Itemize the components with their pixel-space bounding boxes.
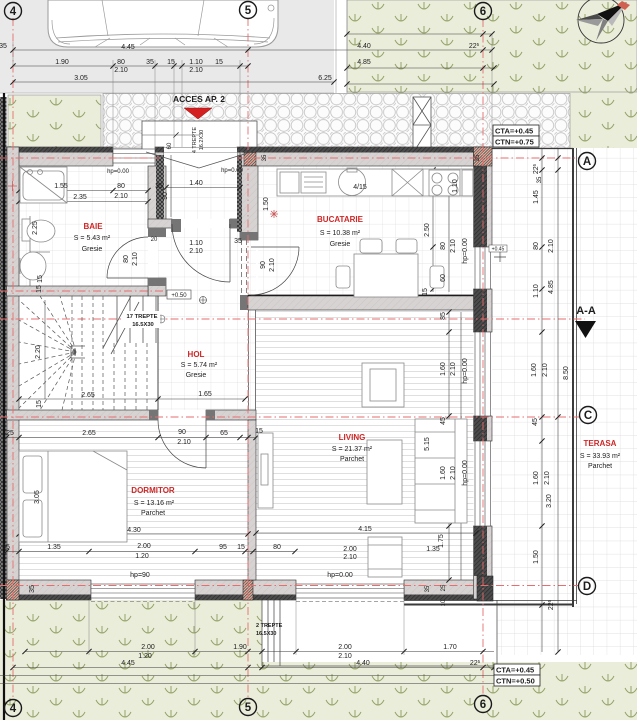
svg-text:2.10: 2.10: [269, 258, 276, 272]
svg-text:15: 15: [422, 288, 429, 296]
svg-text:80: 80: [533, 242, 540, 250]
svg-text:4.85: 4.85: [548, 280, 555, 294]
svg-text:10: 10: [441, 599, 447, 606]
svg-text:4.40: 4.40: [357, 43, 371, 50]
svg-text:S = 33.93 m²: S = 33.93 m²: [580, 453, 621, 460]
svg-text:1.20: 1.20: [138, 653, 152, 660]
svg-text:4.15: 4.15: [358, 526, 372, 533]
svg-text:2.10: 2.10: [114, 193, 128, 200]
svg-text:45: 45: [532, 418, 539, 426]
svg-text:3.20: 3.20: [546, 494, 553, 508]
svg-text:4.85: 4.85: [357, 59, 371, 66]
svg-text:2.10: 2.10: [177, 439, 191, 446]
svg-text:35: 35: [425, 585, 431, 592]
svg-text:15: 15: [37, 275, 44, 283]
svg-text:6: 6: [480, 6, 486, 18]
svg-text:4.45: 4.45: [121, 44, 135, 51]
svg-text:15: 15: [255, 428, 263, 435]
svg-text:2.50: 2.50: [424, 223, 431, 237]
svg-text:CTN=+0.50: CTN=+0.50: [496, 677, 535, 686]
svg-text:2.00: 2.00: [137, 543, 151, 550]
svg-text:2.00: 2.00: [141, 644, 155, 651]
svg-text:A-A: A-A: [576, 305, 596, 317]
svg-text:1.50: 1.50: [533, 550, 540, 564]
svg-text:2.10: 2.10: [548, 239, 555, 253]
svg-text:1.65: 1.65: [198, 391, 212, 398]
svg-text:25: 25: [441, 584, 447, 591]
svg-text:4/15: 4/15: [353, 184, 367, 191]
svg-text:16.5X30: 16.5X30: [132, 322, 154, 328]
svg-text:hp=0.00: hp=0.00: [462, 238, 469, 264]
svg-text:ACCES AP. 2: ACCES AP. 2: [173, 94, 225, 104]
svg-text:BUCATARIE: BUCATARIE: [317, 215, 364, 224]
svg-text:1.90: 1.90: [55, 59, 69, 66]
svg-text:1.40: 1.40: [189, 180, 203, 187]
svg-text:95: 95: [219, 544, 227, 551]
svg-text:2.10: 2.10: [343, 554, 357, 561]
svg-text:D: D: [583, 581, 591, 593]
svg-text:80: 80: [117, 59, 125, 66]
svg-text:35: 35: [537, 176, 543, 183]
svg-text:2.10: 2.10: [542, 363, 549, 377]
svg-text:1.10: 1.10: [452, 179, 459, 193]
svg-text:C: C: [584, 410, 592, 422]
svg-text:A: A: [583, 156, 591, 168]
svg-text:90: 90: [178, 429, 186, 436]
svg-text:5: 5: [245, 702, 252, 714]
svg-text:65: 65: [220, 430, 228, 437]
svg-text:LIVING: LIVING: [339, 433, 366, 442]
svg-text:35: 35: [2, 544, 10, 551]
svg-text:2.10: 2.10: [189, 248, 203, 255]
svg-text:15: 15: [215, 59, 223, 66]
svg-text:35: 35: [29, 585, 36, 593]
svg-text:1.50: 1.50: [263, 197, 270, 211]
svg-text:S = 21.37 m²: S = 21.37 m²: [332, 446, 373, 453]
svg-text:5: 5: [245, 5, 252, 17]
svg-text:2.10: 2.10: [189, 67, 203, 74]
svg-text:4: 4: [10, 703, 17, 715]
svg-text:S = 5.74 m²: S = 5.74 m²: [181, 362, 218, 369]
svg-text:hp=0.00: hp=0.00: [107, 169, 130, 175]
svg-text:4: 4: [10, 6, 17, 18]
svg-text:2.00: 2.00: [343, 546, 357, 553]
svg-text:5.15: 5.15: [424, 437, 431, 451]
svg-text:Gresie: Gresie: [82, 246, 103, 253]
svg-text:3.05: 3.05: [74, 75, 88, 82]
svg-text:2.25: 2.25: [32, 221, 39, 235]
svg-text:1.60: 1.60: [533, 471, 540, 485]
svg-text:2.10: 2.10: [544, 471, 551, 485]
svg-text:15: 15: [167, 59, 175, 66]
svg-text:CTA=+0.45: CTA=+0.45: [496, 666, 534, 675]
svg-text:2.65: 2.65: [81, 392, 95, 399]
svg-text:80: 80: [117, 183, 125, 190]
svg-text:1.20: 1.20: [135, 553, 149, 560]
svg-text:1.60: 1.60: [531, 363, 538, 377]
svg-text:2.65: 2.65: [82, 430, 96, 437]
svg-text:DORMITOR: DORMITOR: [131, 486, 175, 495]
svg-text:+0.50: +0.50: [171, 293, 187, 299]
svg-text:S = 10.38 m²: S = 10.38 m²: [320, 230, 361, 237]
svg-text:2.10: 2.10: [132, 252, 139, 266]
svg-text:35: 35: [0, 43, 7, 50]
svg-text:4.45: 4.45: [121, 660, 135, 667]
svg-text:hp=0.00: hp=0.00: [462, 460, 469, 486]
svg-text:S = 13.16 m²: S = 13.16 m²: [134, 500, 175, 507]
svg-text:+0.45: +0.45: [492, 247, 505, 253]
svg-text:15: 15: [237, 544, 245, 551]
svg-text:2.35: 2.35: [73, 194, 87, 201]
svg-text:60: 60: [440, 274, 447, 282]
svg-text:4 TREPTE: 4 TREPTE: [192, 127, 198, 154]
svg-text:Parchet: Parchet: [340, 456, 364, 463]
svg-text:1.45: 1.45: [533, 190, 540, 204]
svg-text:16.5X30: 16.5X30: [256, 631, 277, 637]
svg-text:CTA=+0.45: CTA=+0.45: [495, 127, 533, 136]
svg-text:BAIE: BAIE: [83, 222, 103, 231]
svg-text:90: 90: [162, 192, 169, 200]
svg-text:hp=90: hp=90: [130, 572, 150, 579]
svg-text:Parchet: Parchet: [141, 510, 165, 517]
svg-text:2.10: 2.10: [450, 239, 457, 253]
svg-text:16.2X30: 16.2X30: [199, 130, 205, 151]
svg-text:6.25: 6.25: [318, 75, 332, 82]
svg-text:1.60: 1.60: [440, 466, 447, 480]
svg-text:35: 35: [475, 154, 481, 161]
svg-text:1.35: 1.35: [47, 544, 61, 551]
svg-text:15: 15: [36, 285, 43, 293]
svg-text:35: 35: [234, 238, 242, 245]
svg-text:1.35: 1.35: [426, 546, 440, 553]
svg-text:25: 25: [6, 430, 14, 437]
svg-text:hp=0.00: hp=0.00: [327, 572, 353, 579]
svg-text:2.10: 2.10: [114, 67, 128, 74]
svg-text:80: 80: [123, 255, 130, 263]
svg-text:2.10: 2.10: [450, 466, 457, 480]
svg-text:4.30: 4.30: [127, 527, 141, 534]
svg-text:2 TREPTE: 2 TREPTE: [256, 623, 283, 629]
svg-text:S = 5.43 m²: S = 5.43 m²: [74, 235, 111, 242]
svg-text:Parchet: Parchet: [588, 463, 612, 470]
svg-text:1.10: 1.10: [189, 59, 203, 66]
svg-text:Gresie: Gresie: [330, 241, 351, 248]
svg-text:2.00: 2.00: [338, 644, 352, 651]
svg-text:20: 20: [151, 237, 158, 243]
svg-text:35: 35: [146, 59, 154, 66]
svg-text:80: 80: [273, 544, 281, 551]
svg-text:1.55: 1.55: [54, 183, 68, 190]
svg-text:85: 85: [440, 312, 447, 320]
svg-text:1.10: 1.10: [189, 240, 203, 247]
svg-text:hp=0.00: hp=0.00: [462, 358, 469, 384]
svg-text:1.60: 1.60: [440, 362, 447, 376]
svg-text:TERASA: TERASA: [584, 439, 617, 448]
svg-text:90: 90: [260, 261, 267, 269]
svg-text:60: 60: [167, 142, 173, 149]
svg-text:80: 80: [440, 242, 447, 250]
svg-text:1.10: 1.10: [533, 284, 540, 298]
svg-text:1.70: 1.70: [443, 644, 457, 651]
svg-text:2.10: 2.10: [450, 362, 457, 376]
svg-text:15: 15: [36, 400, 43, 408]
svg-text:6: 6: [480, 699, 486, 711]
svg-text:CTN=+0.75: CTN=+0.75: [495, 138, 534, 147]
svg-text:1.90: 1.90: [233, 644, 247, 651]
svg-text:Gresie: Gresie: [186, 372, 207, 379]
svg-text:4.40: 4.40: [356, 660, 370, 667]
svg-text:2.10: 2.10: [338, 653, 352, 660]
svg-text:8.50: 8.50: [563, 366, 570, 380]
svg-text:hp=0.00: hp=0.00: [221, 168, 244, 174]
svg-text:35: 35: [155, 183, 163, 190]
svg-text:2.20: 2.20: [35, 345, 42, 359]
svg-text:HOL: HOL: [188, 350, 205, 359]
svg-text:35: 35: [262, 154, 268, 161]
svg-text:17 TREPTE: 17 TREPTE: [127, 314, 158, 320]
svg-text:45: 45: [440, 417, 447, 425]
svg-text:3.05: 3.05: [34, 490, 41, 504]
